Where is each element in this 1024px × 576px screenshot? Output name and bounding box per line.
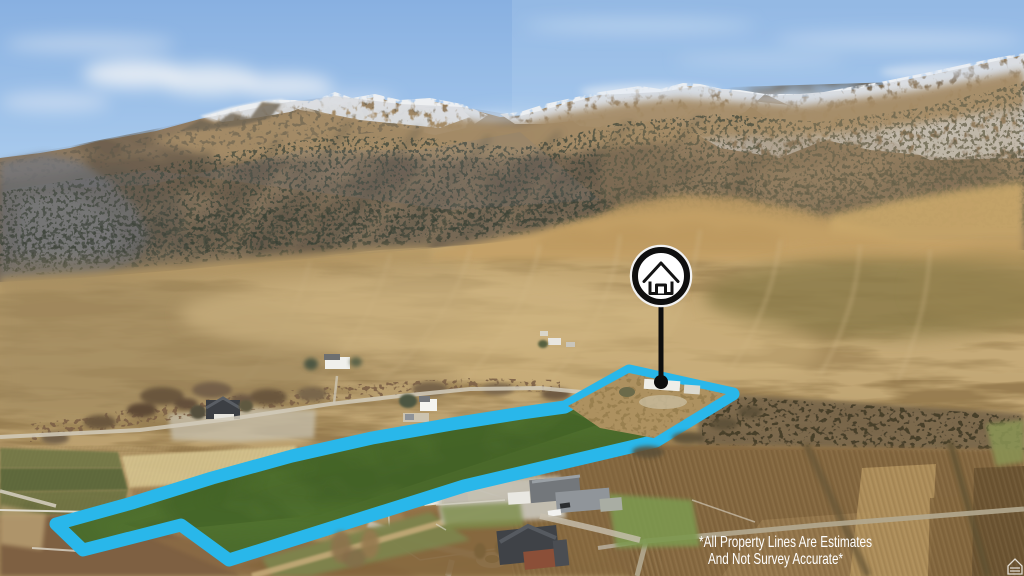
svg-text:*All Property Lines Are Estima: *All Property Lines Are Estimates: [699, 534, 872, 551]
svg-text:And Not Survey Accurate*: And Not Survey Accurate*: [708, 551, 843, 568]
